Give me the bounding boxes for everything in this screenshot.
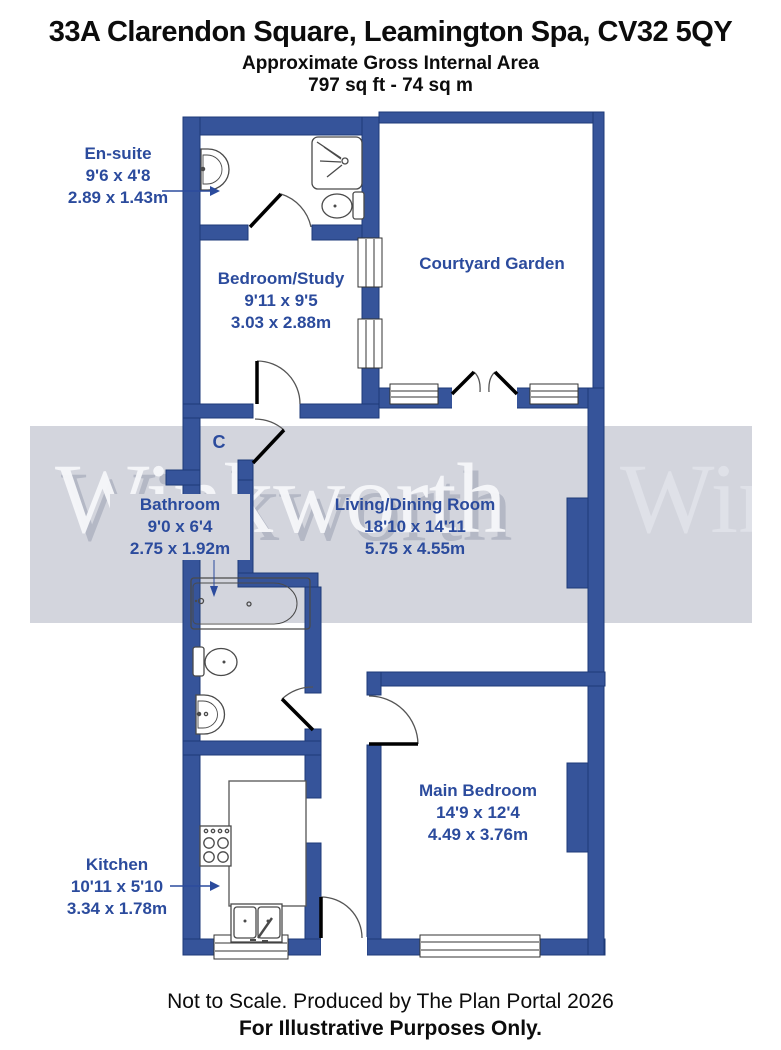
footer-illustrative-note: For Illustrative Purposes Only.	[0, 1017, 781, 1041]
chimney-breast-living	[567, 498, 588, 588]
wall-mainbedroom-top	[367, 672, 605, 686]
window-main-bedroom	[420, 935, 540, 957]
bathroom-basin-icon	[196, 695, 225, 734]
wall-courtyard-top	[379, 112, 604, 123]
door-leaf-ensuite	[250, 194, 281, 227]
wall-bedroom-bottom-left	[183, 404, 253, 418]
door-leaf-bathroom	[282, 699, 313, 730]
kitchen-counter	[229, 781, 306, 906]
room-dims-metric: 2.75 x 1.92m	[110, 538, 250, 560]
room-dims-imperial: 14'9 x 12'4	[378, 802, 578, 824]
window-courtyard-right	[530, 384, 578, 404]
hob-icon	[200, 826, 231, 866]
room-dims-imperial: 9'0 x 6'4	[110, 516, 250, 538]
page-title: 33A Clarendon Square, Leamington Spa, CV…	[0, 16, 781, 49]
room-name: Courtyard Garden	[392, 253, 592, 275]
room-dims-imperial: 18'10 x 14'11	[315, 516, 515, 538]
room-label-courtyard-garden: Courtyard Garden	[392, 253, 592, 275]
room-label-main-bedroom: Main Bedroom 14'9 x 12'4 4.49 x 3.76m	[378, 780, 578, 846]
room-name: Main Bedroom	[378, 780, 578, 802]
ensuite-toilet-icon	[322, 192, 364, 219]
wall-kitchen-right	[305, 843, 321, 939]
wall-hall-left-mid	[305, 729, 321, 798]
room-dims-imperial: 9'6 x 4'8	[28, 165, 208, 187]
room-dims-metric: 3.03 x 2.88m	[181, 312, 381, 334]
shower-icon	[312, 137, 362, 189]
footer-disclaimer: Not to Scale. Produced by The Plan Porta…	[0, 990, 781, 1014]
room-label-kitchen: Kitchen 10'11 x 5'10 3.34 x 1.78m	[37, 854, 197, 920]
wall-bathroom-jog	[238, 573, 318, 587]
room-name: Bathroom	[110, 494, 250, 516]
floorplan-page: Winkworth Winkworth Winkworth	[0, 0, 781, 1050]
room-dims-imperial: 10'11 x 5'10	[37, 876, 197, 898]
wall-bathroom-kitchen-divider	[183, 741, 321, 755]
wall-mainbedroom-left-stub	[367, 672, 381, 695]
door-arc-ensuite	[281, 194, 311, 227]
opening-entrance	[321, 937, 367, 957]
room-label-bedroom-study: Bedroom/Study 9'11 x 9'5 3.03 x 2.88m	[181, 268, 381, 334]
wall-bathroom-right	[305, 587, 321, 693]
wall-ensuite-divider-left	[200, 225, 248, 240]
room-name: C	[204, 431, 234, 453]
kitchen-sink-icon	[231, 904, 282, 942]
wall-cupboard-stub	[238, 460, 253, 481]
window-courtyard-left	[390, 384, 438, 404]
room-label-living-dining: Living/Dining Room 18'10 x 14'11 5.75 x …	[315, 494, 515, 560]
wall-courtyard-right	[593, 112, 604, 388]
room-label-cupboard: C	[204, 431, 234, 453]
room-name: Kitchen	[37, 854, 197, 876]
door-arc-main-bedroom	[369, 696, 418, 744]
room-label-ensuite: En-suite 9'6 x 4'8 2.89 x 1.43m	[28, 143, 208, 209]
opening-french-doors	[452, 386, 517, 410]
room-dims-metric: 4.49 x 3.76m	[378, 824, 578, 846]
door-arc-bedroom-study	[257, 361, 300, 404]
room-label-bathroom: Bathroom 9'0 x 6'4 2.75 x 1.92m	[110, 494, 250, 560]
wall-left-pier	[166, 470, 200, 485]
subtitle-area-value: 797 sq ft - 74 sq m	[0, 75, 781, 97]
room-dims-metric: 2.89 x 1.43m	[28, 187, 208, 209]
room-dims-metric: 5.75 x 4.55m	[315, 538, 515, 560]
bathroom-toilet-icon	[193, 647, 237, 676]
watermark-text-repeat: Winkworth	[620, 443, 781, 554]
room-name: Living/Dining Room	[315, 494, 515, 516]
wall-bedroom-bottom-right	[300, 404, 379, 418]
room-name: Bedroom/Study	[181, 268, 381, 290]
room-dims-imperial: 9'11 x 9'5	[181, 290, 381, 312]
subtitle-area-heading: Approximate Gross Internal Area	[0, 53, 781, 75]
wall-ensuite-divider-right	[312, 225, 362, 240]
wall-top	[183, 117, 379, 135]
room-dims-metric: 3.34 x 1.78m	[37, 898, 197, 920]
room-name: En-suite	[28, 143, 208, 165]
door-arc-entrance	[321, 897, 362, 938]
